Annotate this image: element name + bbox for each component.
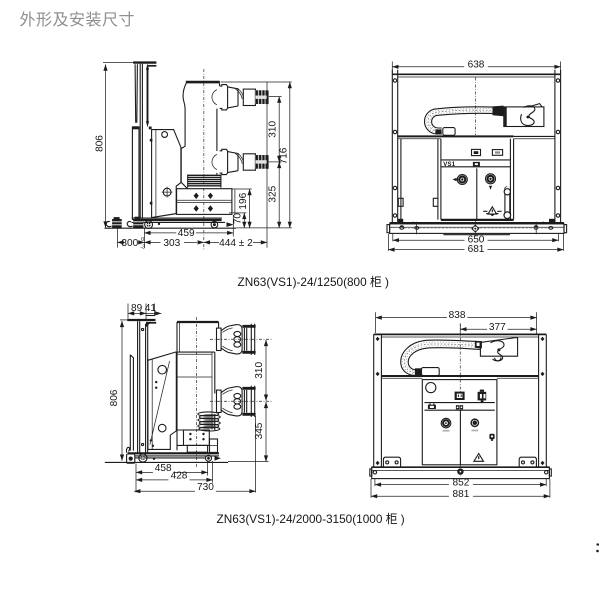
svg-text:345: 345 [254,422,265,439]
svg-text:838: 838 [449,310,466,321]
svg-text:310: 310 [268,120,279,137]
svg-text:ZN63(VS1)-24/2000-3150(1000 柜: ZN63(VS1)-24/2000-3150(1000 柜 ) [217,512,405,526]
svg-text:638: 638 [468,60,485,71]
svg-text:-3: -3 [140,245,145,251]
svg-text:外形及安装尺寸: 外形及安装尺寸 [20,11,136,29]
svg-text:458: 458 [155,463,172,474]
svg-text:VS1: VS1 [443,162,456,168]
svg-text:300: 300 [121,238,138,249]
svg-text:428: 428 [171,471,188,482]
svg-text:730: 730 [197,482,214,493]
svg-text:377: 377 [489,322,506,333]
svg-text:459: 459 [178,228,195,239]
svg-text:716: 716 [278,147,289,164]
svg-text:806: 806 [94,135,105,152]
svg-text:444 ± 2: 444 ± 2 [219,238,253,249]
svg-text:0: 0 [141,237,144,243]
svg-text:196: 196 [238,192,249,209]
svg-text:681: 681 [468,244,485,255]
svg-text:303: 303 [163,238,180,249]
svg-text:ZN63(VS1)-24/1250(800 柜 ): ZN63(VS1)-24/1250(800 柜 ) [238,275,390,289]
svg-text:70: 70 [233,213,244,225]
svg-text:806: 806 [109,389,120,406]
svg-text:89: 89 [131,303,143,314]
svg-text:325: 325 [268,185,279,202]
svg-text:881: 881 [452,489,469,500]
svg-text:852: 852 [452,477,469,488]
svg-text:41: 41 [145,303,157,314]
svg-text:310: 310 [254,361,265,378]
